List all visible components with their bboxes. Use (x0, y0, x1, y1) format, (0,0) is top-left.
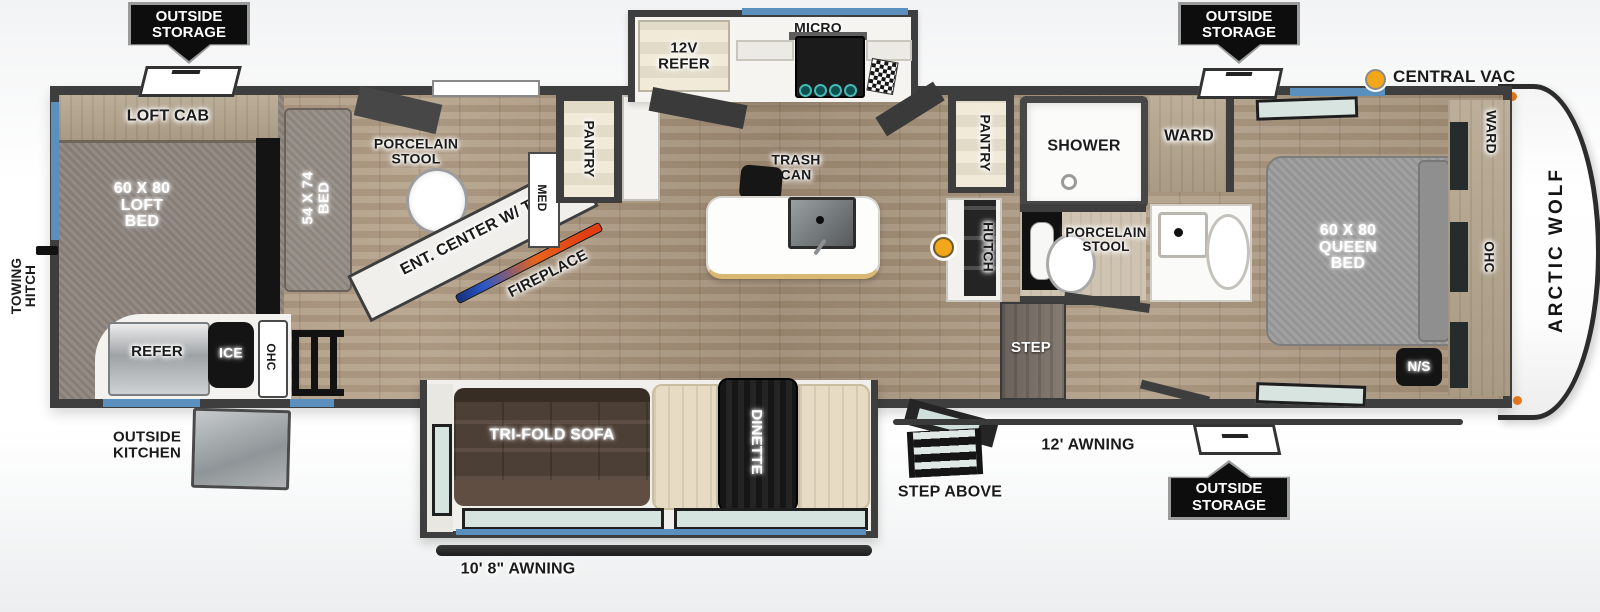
bath-wall-mid (1020, 204, 1146, 212)
wardrobe-door-1 (1450, 122, 1468, 190)
burner-1 (799, 84, 812, 97)
bed-54x74-label: 54 X 74 BED (300, 138, 331, 258)
awning-rear-label: 10' 8" AWNING (428, 562, 608, 579)
slide-window-strip (456, 529, 866, 535)
refer-rear-label: REFER (112, 344, 202, 360)
vanity-sink-drain (1174, 228, 1183, 237)
storage-door-handle-top-right (1226, 72, 1253, 76)
slide-end-window (432, 424, 452, 516)
step-label: STEP (996, 340, 1066, 356)
ohc-rear-label: OHC (265, 327, 277, 387)
slide-window-right (674, 508, 868, 530)
wardrobe-door-3 (1450, 322, 1468, 388)
marker-light-bottom (1513, 396, 1522, 405)
brand-wordmark: ARCTIC WOLF (1547, 140, 1567, 360)
floorplan-canvas: ARCTIC WOLF LOFT CAB 60 X 80 LOFT BED 54… (0, 0, 1600, 612)
storage-door-icon-bottom-right (1193, 424, 1282, 455)
window-strip-bottom-left-1 (103, 399, 200, 407)
dinette-bench-right (798, 384, 870, 510)
bed-pillows (1418, 160, 1450, 342)
outside-storage-badge-top-right: OUTSIDE STORAGE (1178, 2, 1300, 64)
towing-hitch-mark (36, 246, 58, 255)
bedroom-window-bottom (1256, 382, 1367, 407)
cabinet-door-left (736, 40, 794, 61)
ice-maker-label: ICE (206, 346, 256, 361)
kitchen-slide-window (742, 8, 908, 15)
dinette-bench-left (652, 384, 718, 510)
front-ohc-label: OHC (1482, 227, 1497, 287)
shower-drain (1061, 174, 1077, 190)
tri-fold-sofa (454, 388, 650, 506)
mid-porcelain-stool-label: PORCELAIN STOOL (1051, 226, 1161, 254)
bedroom-window-top (1256, 96, 1359, 121)
burner-3 (829, 84, 842, 97)
towing-hitch-label: TOWING HITCH (10, 246, 38, 326)
dinette-label: DINETTE (748, 387, 764, 497)
outside-kitchen-slab (191, 408, 291, 491)
wardrobe-door-2 (1450, 222, 1468, 292)
refer-12v-label: 12V REFER (639, 40, 729, 71)
sofa-label: TRI-FOLD SOFA (457, 428, 647, 445)
queen-bed-label: 60 X 80 QUEEN BED (1293, 223, 1403, 273)
nightstand-label: N/S (1396, 360, 1442, 374)
vanity-basin-oval (1206, 214, 1250, 290)
central-vac-dot (933, 237, 954, 258)
outside-storage-badge-top-left: OUTSIDE STORAGE (128, 2, 250, 64)
shower-label: SHOWER (1029, 139, 1139, 156)
dish-mat (866, 58, 898, 95)
storage-door-handle-bottom-right (1222, 434, 1249, 438)
burner-4 (844, 84, 857, 97)
window-strip-bottom-left-2 (290, 399, 334, 407)
window-strip-left-wall (51, 102, 59, 240)
entry-steps (907, 428, 983, 478)
hutch-label: HUTCH (981, 202, 996, 292)
central-vac-legend-dot (1365, 69, 1386, 90)
outside-storage-badge-top-right-text: OUTSIDE STORAGE (1181, 5, 1297, 61)
loft-ladder (292, 330, 344, 396)
rear-porcelain-stool-label: PORCELAIN STOOL (351, 136, 481, 165)
loft-divider-wall (256, 138, 280, 322)
loft-bed-label: 60 X 80 LOFT BED (87, 181, 197, 231)
awning-rail-main (893, 419, 1463, 425)
loft-cab-label: LOFT CAB (98, 109, 238, 126)
central-vac-label: CENTRAL VAC (1393, 68, 1553, 86)
med-cabinet-label: MED (536, 168, 548, 228)
outside-storage-badge-bottom-right: OUTSIDE STORAGE (1168, 460, 1290, 520)
window-top-left (432, 80, 540, 97)
sink-drain (816, 216, 824, 224)
awning-rail-rear (436, 545, 872, 556)
outside-storage-badge-bottom-right-text: OUTSIDE STORAGE (1171, 463, 1287, 517)
outside-storage-badge-top-left-text: OUTSIDE STORAGE (131, 5, 247, 61)
mid-pantry-label: PANTRY (978, 93, 993, 193)
mid-ward-label: WARD (1144, 129, 1234, 146)
outside-kitchen-label: OUTSIDE KITCHEN (92, 429, 202, 460)
front-ward-label: WARD (1484, 97, 1499, 167)
vanity-sink-square (1158, 212, 1208, 258)
burner-2 (814, 84, 827, 97)
slide-window-left (462, 508, 664, 530)
storage-door-handle-top-left (172, 70, 201, 74)
step-above-label: STEP ABOVE (880, 485, 1020, 502)
rear-pantry-label: PANTRY (582, 99, 597, 199)
awning-main-label: 12' AWNING (1018, 438, 1158, 455)
